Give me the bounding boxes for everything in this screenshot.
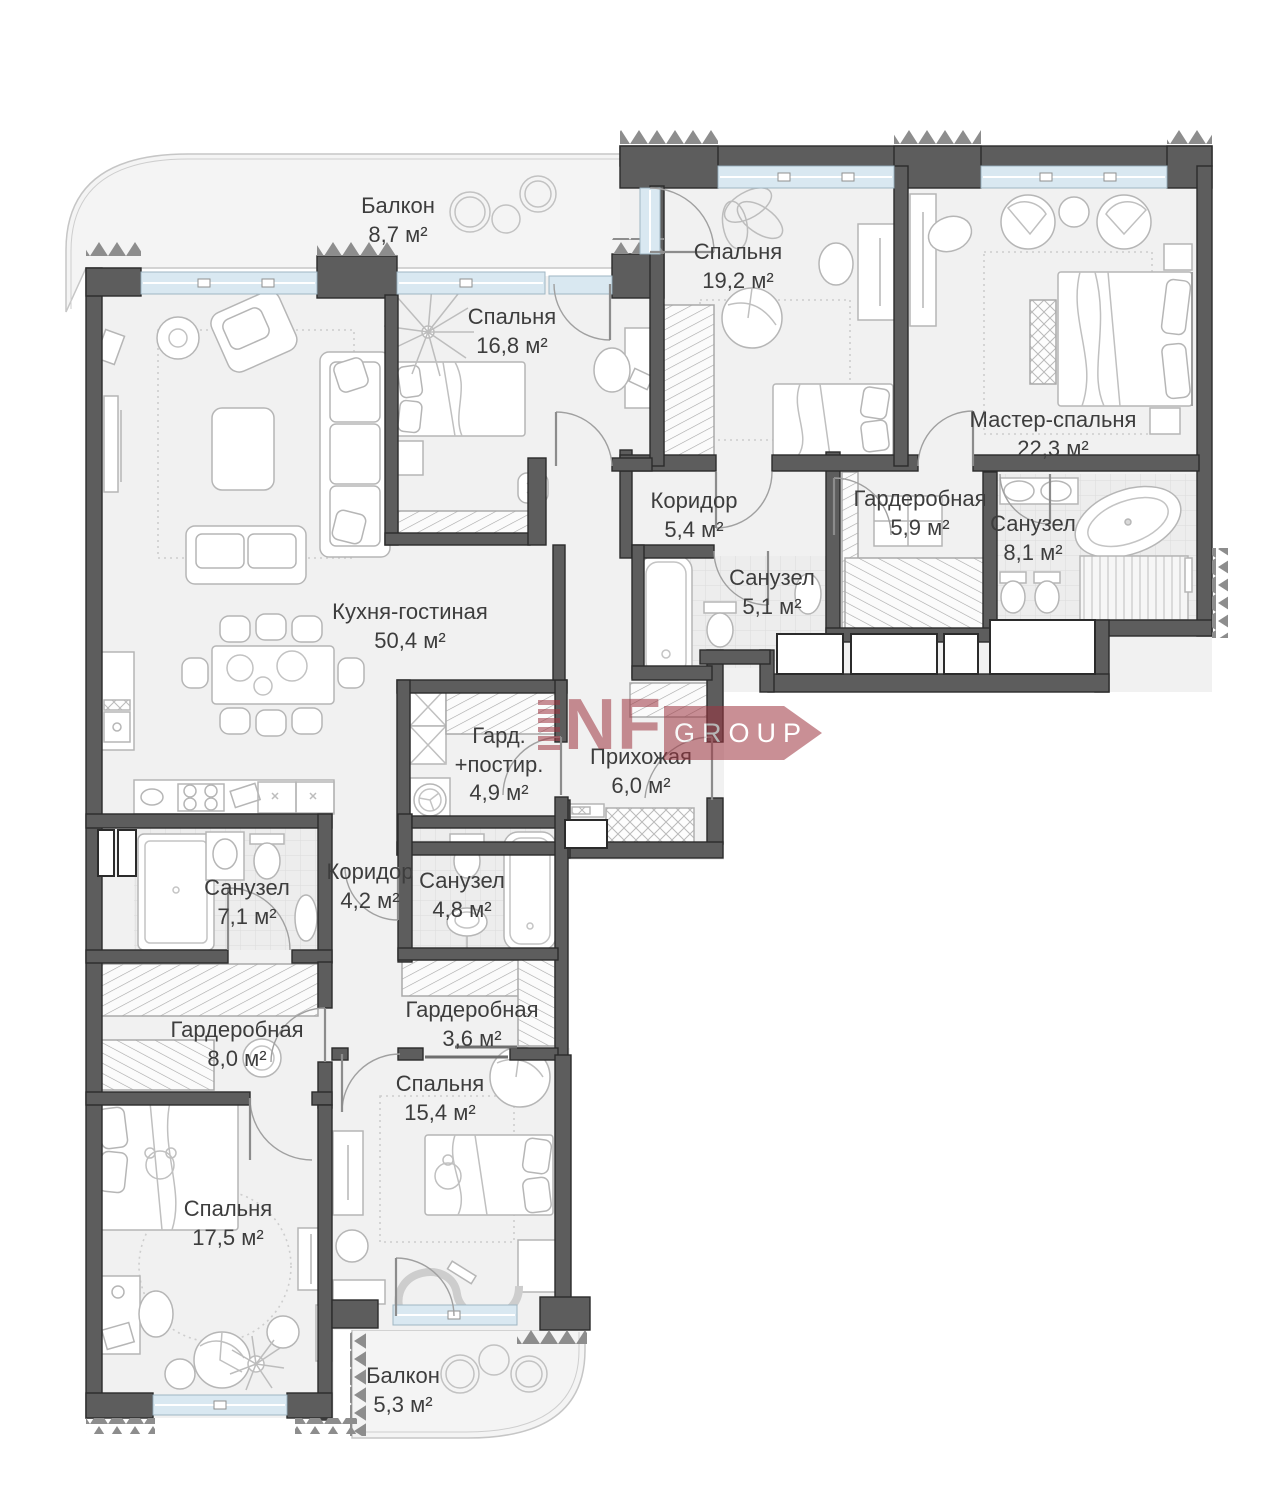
room-label-balcony-bottom: Балкон 5,3 м² [366, 1362, 440, 1419]
tv-unit-icon [104, 396, 118, 492]
nightstand-icon [1164, 244, 1192, 270]
room-label-wardrobe-36: Гардеробная 3,6 м² [405, 996, 538, 1053]
room-label-wardrobe-59: Гардеробная 5,9 м² [853, 485, 986, 542]
room-area: 5,9 м² [890, 514, 949, 543]
room-area: 4,8 м² [432, 896, 491, 925]
room-label-bedroom-175: Спальня 17,5 м² [184, 1195, 272, 1252]
sink-icon [206, 832, 244, 880]
room-label-bathroom-51: Санузел 5,1 м² [729, 564, 815, 621]
side-table-icon [157, 317, 199, 359]
nightstand-icon [1150, 408, 1180, 434]
room-area: 4,2 м² [340, 887, 399, 916]
lounge-chair-icon [1097, 195, 1151, 249]
round-table-icon [1059, 197, 1089, 227]
cabinet-icon [518, 1240, 558, 1292]
bathtub-icon [138, 834, 214, 950]
room-name: Балкон [361, 192, 435, 221]
room-name: Спальня [396, 1070, 484, 1099]
watermark-suffix-text: GROUP [664, 718, 808, 749]
shower-icon [1080, 556, 1188, 620]
room-name: Спальня [468, 303, 556, 332]
bidet-icon [1034, 572, 1060, 613]
bed-double-icon [425, 1135, 553, 1215]
room-label-bedroom-168: Спальня 16,8 м² [468, 303, 556, 360]
room-label-corridor-54: Коридор 5,4 м² [651, 487, 738, 544]
pouf-icon [722, 288, 782, 348]
mirror-icon [295, 895, 317, 941]
room-label-bathroom-81: Санузел 8,1 м² [990, 510, 1076, 567]
lounge-chair-icon [1001, 195, 1055, 249]
room-area: 15,4 м² [404, 1099, 475, 1128]
pouf-icon [165, 1359, 195, 1389]
beanbag-icon [194, 1332, 250, 1388]
room-name: Санузел [990, 510, 1076, 539]
console-icon [566, 804, 604, 817]
room-area: 7,1 м² [217, 903, 276, 932]
room-label-bedroom-192: Спальня 19,2 м² [694, 238, 782, 295]
wardrobe-band-icon [664, 305, 714, 457]
coffee-table-icon [212, 408, 274, 490]
chair-icon [336, 1230, 368, 1262]
watermark-stripes-icon [538, 700, 560, 750]
room-name: Спальня [694, 238, 782, 267]
towel-rail-icon [1185, 558, 1192, 592]
room-area: 50,4 м² [374, 627, 445, 656]
room-label-corridor-42: Коридор 4,2 м² [327, 858, 414, 915]
shelving-icon [402, 960, 520, 996]
room-label-kitchen-living: Кухня-гостиная 50,4 м² [332, 598, 488, 655]
shelving-icon [845, 558, 995, 630]
room-label-laundry: Гард. +постир. 4,9 м² [447, 722, 551, 808]
bed-king-icon [1058, 272, 1192, 406]
room-name: Санузел [419, 867, 505, 896]
chair-icon [139, 1291, 173, 1337]
room-name: Гардеробная [405, 996, 538, 1025]
double-sink-icon [1000, 478, 1078, 504]
loveseat-icon [186, 526, 306, 584]
toilet-icon [1000, 572, 1026, 613]
room-area: 5,3 м² [373, 1391, 432, 1420]
nightstand-icon [397, 441, 423, 475]
room-label-master-bedroom: Мастер-спальня 22,3 м² [970, 406, 1137, 463]
room-name: Балкон [366, 1362, 440, 1391]
room-area: 3,6 м² [442, 1025, 501, 1054]
room-area: 8,1 м² [1003, 539, 1062, 568]
room-name: Гардеробная [853, 485, 986, 514]
room-name: Спальня [184, 1195, 272, 1224]
room-label-bedroom-154: Спальня 15,4 м² [396, 1070, 484, 1127]
room-label-balcony-top: Балкон 8,7 м² [361, 192, 435, 249]
bed-double-icon [773, 384, 893, 456]
room-area: 5,4 м² [664, 516, 723, 545]
dining-table-icon [212, 646, 334, 704]
room-area: 16,8 м² [476, 332, 547, 361]
room-name: Санузел [729, 564, 815, 593]
room-name: Кухня-гостиная [332, 598, 488, 627]
bench-icon [1030, 300, 1056, 384]
cabinet-icon [410, 688, 446, 764]
room-area: 19,2 м² [702, 267, 773, 296]
chair-icon [819, 243, 853, 285]
room-area: 22,3 м² [1017, 435, 1088, 464]
sofa-icon [320, 352, 390, 557]
room-area: 17,5 м² [192, 1224, 263, 1253]
room-name: Коридор [327, 858, 414, 887]
room-name: Санузел [204, 874, 290, 903]
chair-icon [594, 348, 630, 392]
desk-icon [100, 1276, 140, 1354]
room-name: Коридор [651, 487, 738, 516]
room-area: 4,9 м² [469, 779, 528, 808]
room-area: 8,0 м² [207, 1045, 266, 1074]
room-label-bathroom-71: Санузел 7,1 м² [204, 874, 290, 931]
room-name: Гард. +постир. [447, 722, 551, 779]
bed-double-icon [395, 362, 525, 436]
bathtub-icon [640, 556, 692, 680]
room-name: Мастер-спальня [970, 406, 1137, 435]
room-area: 8,7 м² [368, 221, 427, 250]
room-label-bathroom-48: Санузел 4,8 м² [419, 867, 505, 924]
watermark-arrow-icon: GROUP [664, 706, 822, 760]
watermark-brand-text: NF [564, 692, 662, 758]
floor-plan: Балкон 8,7 м² Спальня 16,8 м² Спальня 19… [0, 0, 1276, 1500]
room-area: 6,0 м² [611, 772, 670, 801]
room-label-wardrobe-80: Гардеробная 8,0 м² [170, 1016, 303, 1073]
watermark-logo: NF GROUP [538, 692, 822, 760]
room-area: 5,1 м² [742, 593, 801, 622]
room-name: Гардеробная [170, 1016, 303, 1045]
shelving-icon [94, 964, 318, 1016]
